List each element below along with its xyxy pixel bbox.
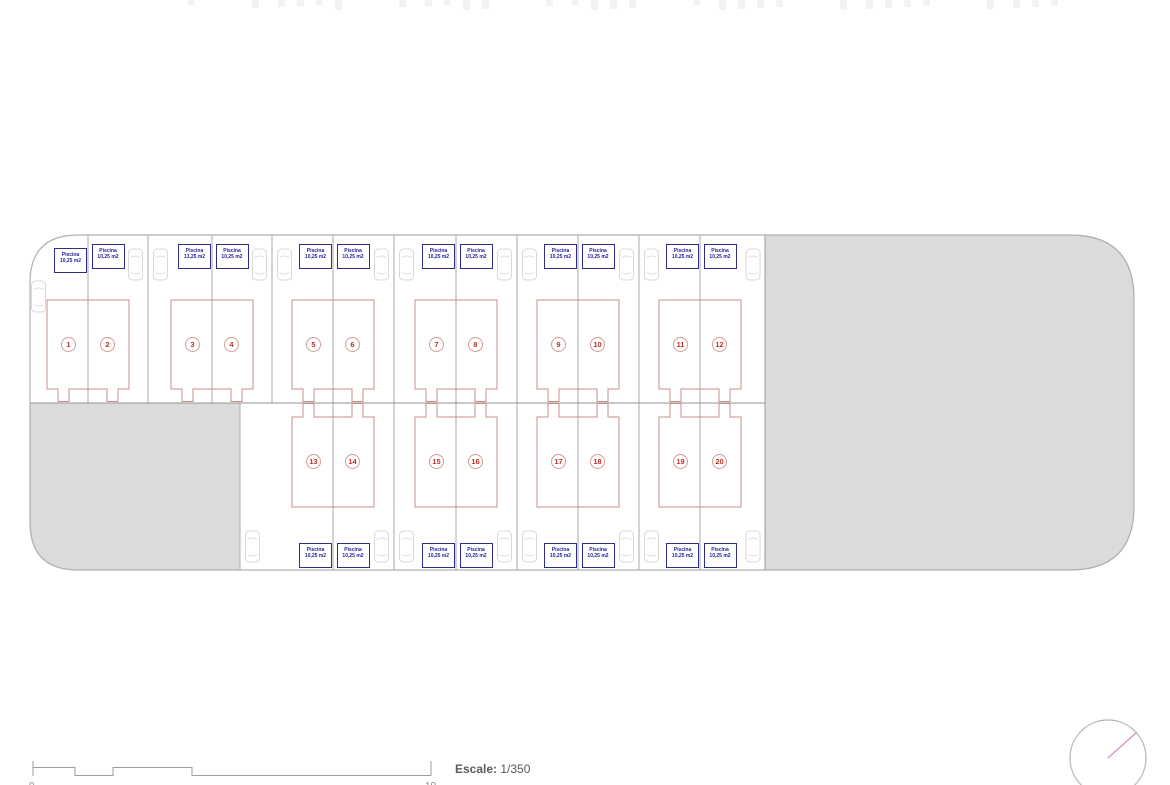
- unit-number-10: 10: [590, 337, 605, 352]
- cutoff-text-fragment: [1032, 0, 1039, 7]
- pool-area-text: 10,25 m2: [423, 254, 454, 260]
- unit-number-16: 16: [468, 454, 483, 469]
- green-zone-bottom-left: [30, 403, 240, 570]
- pool-label-unit-6: Piscina10,25 m2: [337, 244, 370, 269]
- cutoff-text-fragment: [399, 0, 406, 7]
- parked-car-icon: [620, 249, 634, 280]
- parked-car-icon: [400, 249, 414, 280]
- unit-number-20: 20: [712, 454, 727, 469]
- site-plan-canvas: Piscina10,25 m21Piscina10,25 m22Piscina1…: [0, 0, 1170, 785]
- scale-bar: [33, 761, 431, 776]
- parked-car-icon: [645, 531, 659, 562]
- pool-label-unit-14: Piscina10,25 m2: [337, 543, 370, 568]
- parked-car-icon: [620, 531, 634, 562]
- pool-label-unit-17: Piscina10,25 m2: [544, 543, 577, 568]
- pool-area-text: 10,25 m2: [705, 553, 736, 559]
- parked-car-icon: [645, 249, 659, 280]
- cutoff-text-fragment: [1013, 0, 1020, 8]
- cutoff-text-fragment: [629, 0, 636, 8]
- parked-car-icon: [523, 249, 537, 280]
- cutoff-text-fragment: [866, 0, 873, 9]
- scale-caption-value: 1/350: [500, 762, 530, 776]
- parked-car-icon: [498, 531, 512, 562]
- cutoff-text-fragment: [316, 0, 323, 5]
- pool-area-text: 10,25 m2: [300, 254, 331, 260]
- cutoff-text-fragment: [738, 0, 745, 9]
- parked-car-icon: [32, 281, 46, 312]
- parked-car-icon: [278, 249, 292, 280]
- pool-label-unit-8: Piscina10,25 m2: [460, 244, 493, 269]
- unit-number-12: 12: [712, 337, 727, 352]
- pool-area-text: 10,25 m2: [300, 553, 331, 559]
- scale-caption: Escale: 1/350: [455, 762, 530, 776]
- parked-car-icon: [746, 531, 760, 562]
- pool-label-unit-4: Piscina10,25 m2: [216, 244, 249, 269]
- cutoff-text-fragment: [252, 0, 259, 8]
- pool-area-text: 10,25 m2: [217, 254, 248, 260]
- unit-number-8: 8: [468, 337, 483, 352]
- cutoff-text-fragment: [840, 0, 847, 10]
- cutoff-text-fragment: [297, 0, 304, 6]
- pool-area-text: 10,25 m2: [667, 254, 698, 260]
- pool-label-unit-7: Piscina10,25 m2: [422, 244, 455, 269]
- unit-number-2: 2: [100, 337, 115, 352]
- pool-area-text: 10,25 m2: [461, 553, 492, 559]
- unit-number-17: 17: [551, 454, 566, 469]
- pool-label-unit-11: Piscina10,25 m2: [666, 244, 699, 269]
- unit-number-5: 5: [306, 337, 321, 352]
- unit-number-9: 9: [551, 337, 566, 352]
- unit-number-1: 1: [61, 337, 76, 352]
- north-arrow-compass-icon: [1070, 720, 1146, 785]
- cutoff-text-fragment: [591, 0, 598, 10]
- pool-area-text: 10,25 m2: [545, 254, 576, 260]
- unit-number-11: 11: [673, 337, 688, 352]
- pool-area-text: 10,25 m2: [545, 553, 576, 559]
- cutoff-text-fragment: [546, 0, 553, 6]
- pool-label-unit-15: Piscina10,25 m2: [422, 543, 455, 568]
- pool-label-unit-2: Piscina10,25 m2: [92, 244, 125, 269]
- cutoff-text-fragment: [482, 0, 489, 9]
- pool-label-unit-19: Piscina10,25 m2: [666, 543, 699, 568]
- pool-area-text: 10,25 m2: [338, 254, 369, 260]
- cutoff-text-fragment: [463, 0, 470, 10]
- pool-label-unit-3: Piscina13,25 m2: [178, 244, 211, 269]
- parked-car-icon: [746, 249, 760, 280]
- unit-number-4: 4: [224, 337, 239, 352]
- parked-car-icon: [129, 249, 143, 280]
- parked-car-icon: [375, 531, 389, 562]
- unit-number-3: 3: [185, 337, 200, 352]
- pool-area-text: 10,25 m2: [583, 254, 614, 260]
- pool-label-unit-10: Piscina10,25 m2: [582, 244, 615, 269]
- cutoff-text-fragment: [776, 0, 783, 7]
- scale-left-tick-label: 0: [29, 781, 35, 785]
- cutoff-text-fragment: [444, 0, 451, 5]
- cutoff-text-fragment: [278, 0, 285, 7]
- unit-number-14: 14: [345, 454, 360, 469]
- unit-number-18: 18: [590, 454, 605, 469]
- cutoff-text-fragment: [987, 0, 994, 9]
- pool-area-text: 10,25 m2: [423, 553, 454, 559]
- cutoff-text-fragment: [572, 0, 579, 5]
- cutoff-text-fragment: [425, 0, 432, 6]
- pool-area-text: 10,25 m2: [667, 553, 698, 559]
- pool-label-unit-18: Piscina10,25 m2: [582, 543, 615, 568]
- site-plan-drawing: [0, 0, 1170, 785]
- pool-label-unit-1: Piscina10,25 m2: [54, 248, 87, 273]
- pool-label-unit-20: Piscina10,25 m2: [704, 543, 737, 568]
- pool-area-text: 10,25 m2: [583, 553, 614, 559]
- cutoff-text-fragment: [1051, 0, 1058, 6]
- pool-label-unit-16: Piscina10,25 m2: [460, 543, 493, 568]
- unit-number-19: 19: [673, 454, 688, 469]
- unit-number-15: 15: [429, 454, 444, 469]
- parked-car-icon: [523, 531, 537, 562]
- cutoff-text-fragment: [923, 0, 930, 6]
- parked-car-icon: [375, 249, 389, 280]
- pool-label-unit-13: Piscina10,25 m2: [299, 543, 332, 568]
- pool-label-unit-12: Piscina10,25 m2: [704, 244, 737, 269]
- unit-number-7: 7: [429, 337, 444, 352]
- cutoff-text-fragment: [904, 0, 911, 7]
- cutoff-text-fragment: [610, 0, 617, 9]
- parked-car-icon: [246, 531, 260, 562]
- pool-label-unit-5: Piscina10,25 m2: [299, 244, 332, 269]
- pool-area-text: 10,25 m2: [55, 258, 86, 264]
- cutoff-text-fragment: [188, 0, 195, 5]
- unit-number-13: 13: [306, 454, 321, 469]
- cutoff-text-fragment: [719, 0, 726, 10]
- pool-area-text: 10,25 m2: [338, 553, 369, 559]
- unit-number-6: 6: [345, 337, 360, 352]
- scale-caption-label: Escale:: [455, 762, 497, 776]
- cutoff-text-fragment: [757, 0, 764, 8]
- parked-car-icon: [400, 531, 414, 562]
- parked-car-icon: [253, 249, 267, 280]
- pool-area-text: 10,25 m2: [93, 254, 124, 260]
- parked-car-icon: [498, 249, 512, 280]
- pool-label-unit-9: Piscina10,25 m2: [544, 244, 577, 269]
- scale-right-tick-label: 10: [425, 781, 436, 785]
- cutoff-text-fragment: [693, 0, 700, 5]
- pool-area-text: 13,25 m2: [179, 254, 210, 260]
- parked-car-icon: [154, 249, 168, 280]
- green-zone-right: [765, 235, 1134, 570]
- pool-area-text: 10,25 m2: [705, 254, 736, 260]
- pool-area-text: 10,25 m2: [461, 254, 492, 260]
- cutoff-text-fragment: [335, 0, 342, 10]
- cutoff-text-fragment: [885, 0, 892, 8]
